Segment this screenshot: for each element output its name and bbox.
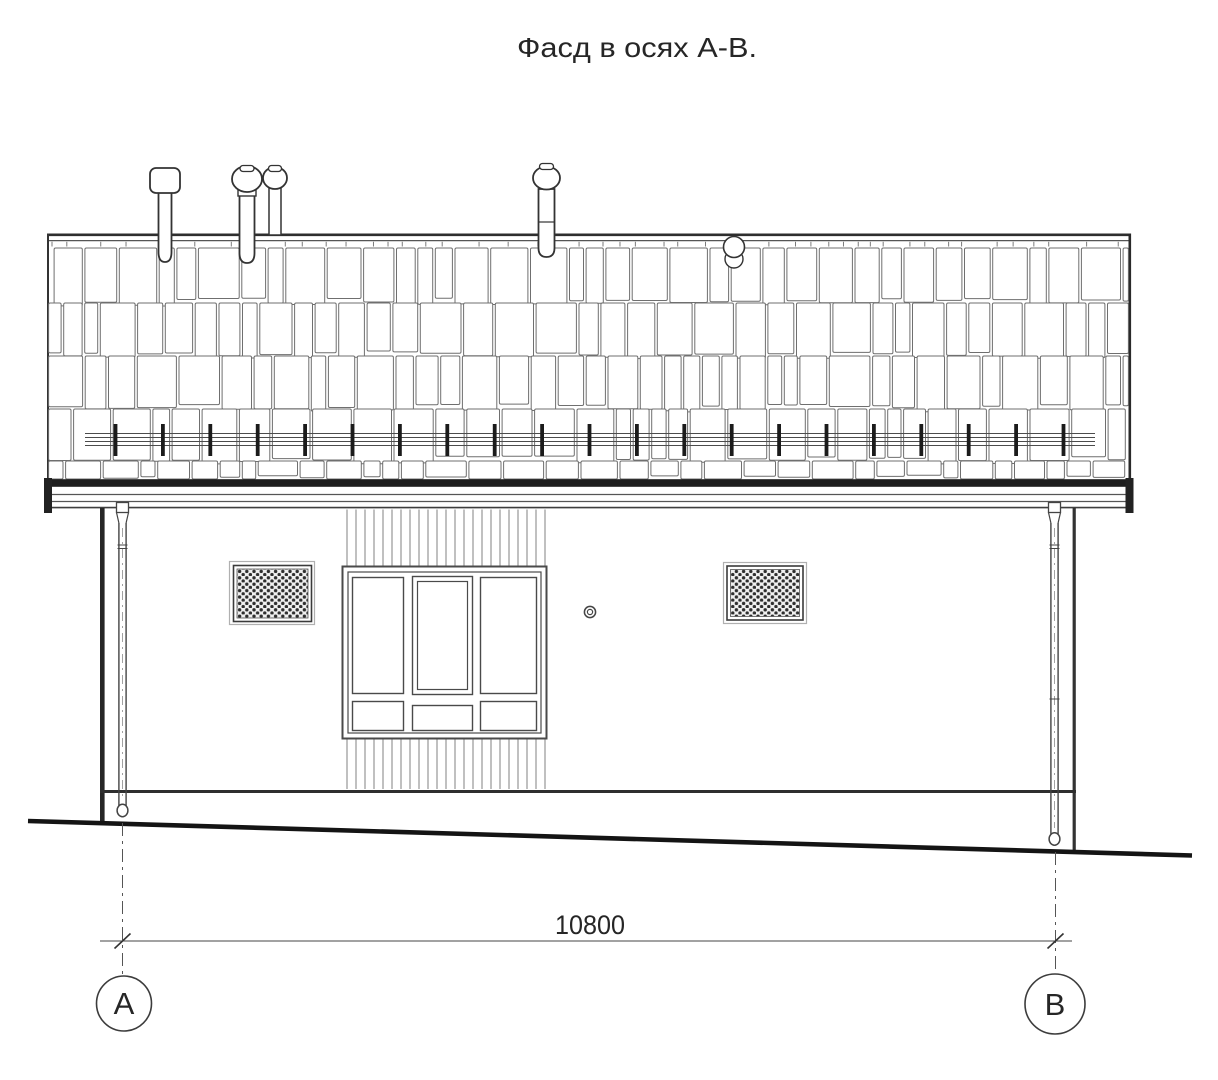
- wall-outlet: [584, 606, 595, 617]
- chimney-3: [263, 166, 287, 236]
- roof-vent-upper-circle: [724, 237, 745, 258]
- window-pane-upper-right: [481, 578, 537, 694]
- wall: [100, 508, 1076, 852]
- chimney-1-pipe: [159, 191, 172, 262]
- chimney-4-top: [540, 164, 554, 170]
- vent-grille-left: [230, 562, 315, 625]
- drawing-title: Фасд в осях А-В.: [517, 32, 757, 63]
- fascia-left-end-cap: [44, 478, 52, 513]
- ground-line: [28, 821, 1192, 856]
- window-pane-upper-left: [353, 578, 404, 694]
- facade-elevation: 10800 А В Фасд в осях А-В.: [0, 0, 1218, 1080]
- window-sash-center: [413, 577, 473, 695]
- chimney-2-top: [240, 166, 254, 172]
- roof-bottom-band: [44, 479, 1134, 487]
- window: [343, 567, 547, 739]
- vent-grille-right: [724, 563, 807, 624]
- chimney-1-cap: [150, 168, 180, 193]
- fascia-band: [52, 487, 1126, 508]
- chimney-4: [533, 164, 560, 258]
- downspout-left: [117, 503, 129, 817]
- axis-marker-b: В: [1025, 974, 1085, 1034]
- grille-right-mesh: [731, 570, 800, 617]
- chimney-2-pipe: [240, 195, 255, 263]
- wall-right-edge: [1073, 508, 1076, 852]
- wall-left-edge: [100, 508, 105, 824]
- window-pane-lower-left: [353, 702, 404, 731]
- chimney-3-pipe: [269, 188, 281, 235]
- downspout-right: [1049, 503, 1061, 846]
- chimney-4-pipe: [539, 189, 555, 257]
- downspout-left-outlet: [117, 804, 128, 816]
- downspout-right-funnel: [1049, 503, 1061, 513]
- axis-b-label: В: [1045, 987, 1066, 1022]
- downspout-left-funnel: [117, 503, 129, 513]
- chimney-3-top: [269, 166, 282, 172]
- axis-a-label: А: [114, 986, 135, 1021]
- window-pane-lower-center: [413, 706, 473, 731]
- wall-outlet-ring: [584, 606, 595, 617]
- eaves: [44, 478, 1134, 513]
- fascia-right-end-cap: [1126, 478, 1134, 513]
- axis-marker-a: А: [97, 976, 152, 1031]
- wall-bottom-line: [100, 790, 1076, 793]
- downspout-right-outlet: [1049, 833, 1060, 845]
- facade-drawing-sheet: 10800 А В Фасд в осях А-В.: [0, 0, 1218, 1080]
- window-pane-lower-right: [481, 702, 537, 731]
- dimension-label: 10800: [555, 910, 625, 940]
- roof-vent-cap: [724, 237, 745, 269]
- downspout-left-taper: [117, 513, 129, 524]
- downspout-right-taper: [1049, 513, 1061, 524]
- wall-outlet-center: [587, 609, 592, 614]
- grille-left-mesh: [237, 569, 308, 618]
